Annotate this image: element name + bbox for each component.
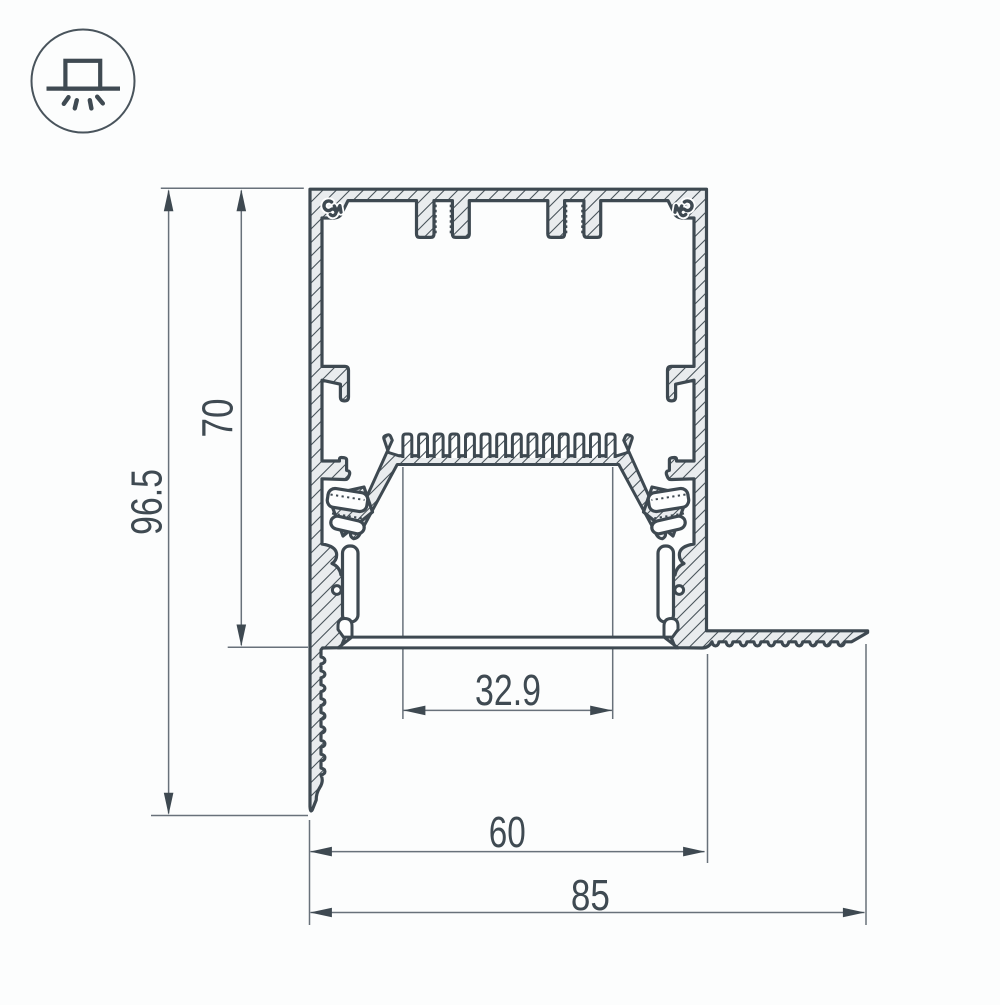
svg-text:70: 70 — [194, 399, 243, 438]
svg-text:60: 60 — [489, 808, 526, 857]
svg-text:32.9: 32.9 — [475, 666, 541, 715]
svg-text:96.5: 96.5 — [123, 469, 172, 535]
svg-text:85: 85 — [571, 871, 610, 920]
